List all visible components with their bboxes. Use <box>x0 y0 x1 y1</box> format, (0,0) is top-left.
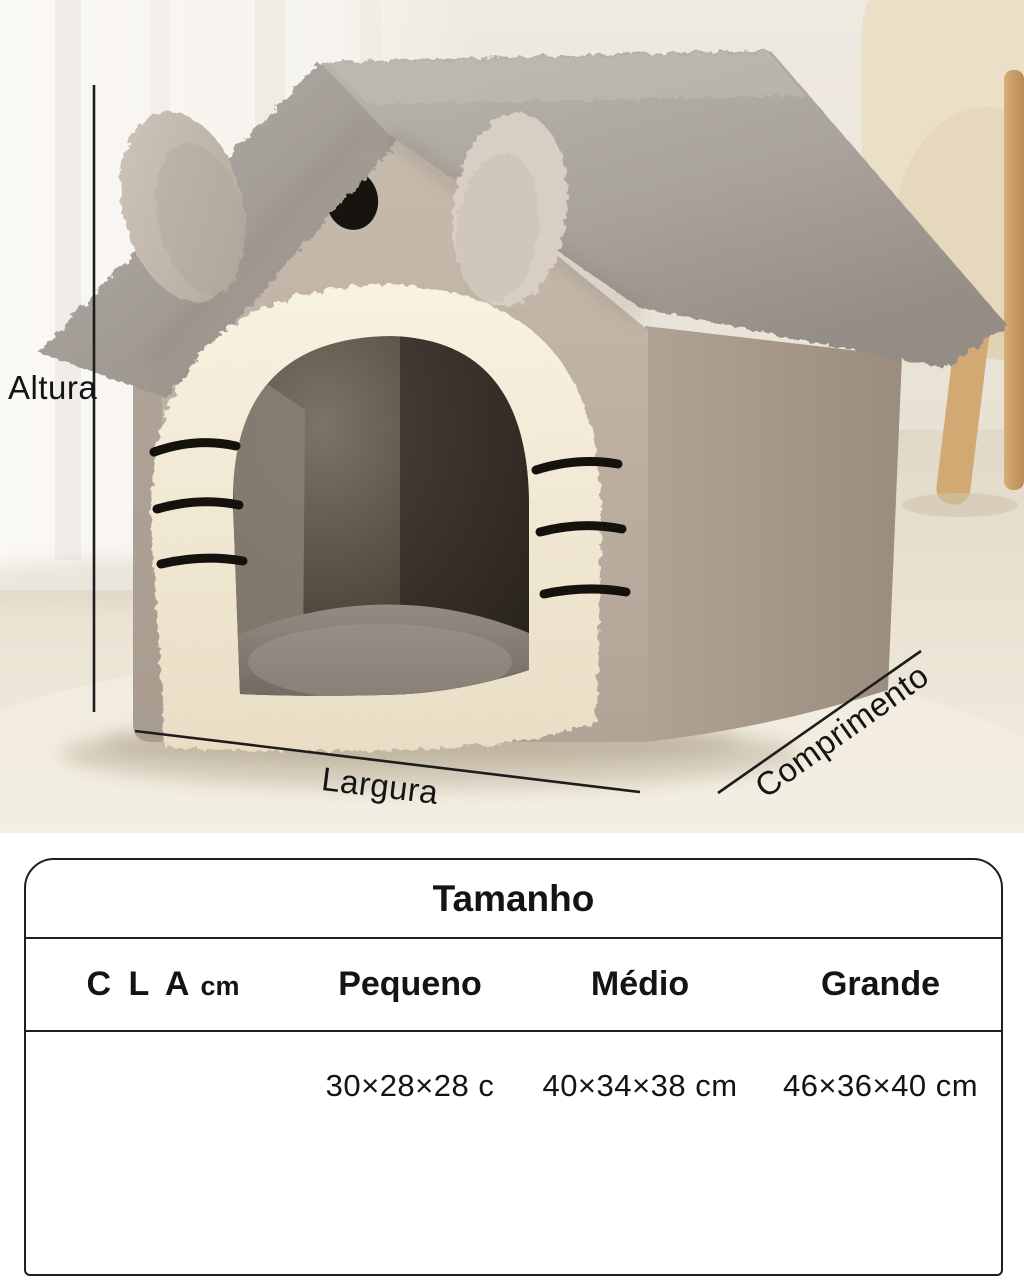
size-table-header-row: C L Acm Pequeno Médio Grande <box>26 939 1001 1032</box>
size-table: Tamanho C L Acm Pequeno Médio Grande 30×… <box>24 858 1003 1276</box>
chair-wood-frame <box>1004 70 1024 490</box>
whisker-right-3 <box>544 589 626 594</box>
size-table-values-row: 30×28×28 c 40×34×38 cm 46×36×40 cm <box>26 1032 1001 1104</box>
value-small: 30×28×28 c <box>300 1068 520 1104</box>
header-size-small: Pequeno <box>300 965 520 1004</box>
product-size-infographic: Altura Largura Comprimento Tamanho C L A… <box>0 0 1024 1280</box>
house-side-face <box>645 326 902 742</box>
height-label: Altura <box>8 369 97 407</box>
product-photo: Altura Largura Comprimento <box>0 0 1024 833</box>
header-size-large: Grande <box>760 965 1001 1004</box>
values-empty-cell <box>26 1068 300 1104</box>
dimension-letters: C L A <box>87 965 194 1003</box>
header-dimensions-cell: C L Acm <box>26 965 300 1004</box>
value-medium: 40×34×38 cm <box>520 1068 760 1104</box>
value-large: 46×36×40 cm <box>760 1068 1001 1104</box>
size-table-title: Tamanho <box>26 860 1001 939</box>
header-size-medium: Médio <box>520 965 760 1004</box>
dimension-unit: cm <box>200 971 239 1001</box>
